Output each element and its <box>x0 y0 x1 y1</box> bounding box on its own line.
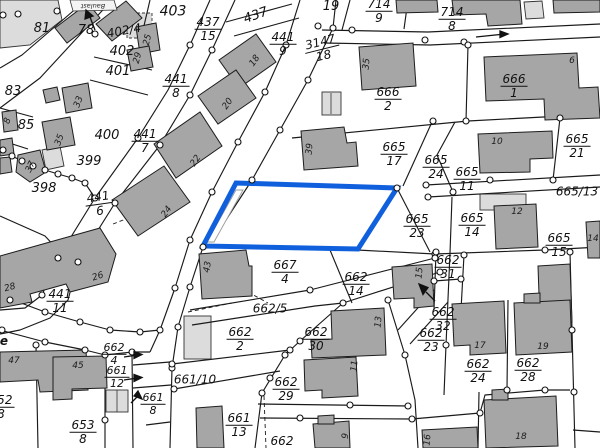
house-number-13: 13 <box>374 316 385 328</box>
house-number-6: 6 <box>569 56 575 66</box>
house-number-12: 12 <box>511 207 522 217</box>
house-number-45: 45 <box>72 361 83 371</box>
house-number-28: 28 <box>3 282 17 295</box>
parcel-label-666-1: 6661 <box>501 73 528 99</box>
parcel-label-661-12: 66112 <box>105 365 130 389</box>
parcel-label-714-8: 7148 <box>439 6 466 32</box>
house-number-17: 17 <box>474 341 485 351</box>
parcel-label-665-23: 66523 <box>404 213 431 239</box>
house-number-24: 24 <box>160 204 175 219</box>
house-number-15: 15 <box>415 267 426 279</box>
parcel-label-662-23: 66223 <box>418 327 445 353</box>
parcel-label-400: 400 <box>93 129 122 143</box>
house-number-11: 11 <box>350 360 361 372</box>
parcel-label-665-15: 66515 <box>546 232 573 258</box>
house-number-14: 14 <box>587 234 598 244</box>
house-number-29: 29 <box>132 51 145 65</box>
parcel-label-3147-18: 314718 <box>302 32 342 66</box>
house-number-47: 47 <box>8 356 19 366</box>
parcel-label-85: 85 <box>16 119 37 133</box>
parcel-label-714-9: 7149 <box>366 0 393 24</box>
parcel-label-81: 81 <box>32 22 53 36</box>
house-number-18: 18 <box>248 53 263 68</box>
house-number-33: 33 <box>72 95 85 109</box>
house-number-37: 37 <box>24 160 38 175</box>
parcel-label-19: 19 <box>321 0 342 14</box>
parcel-label-665-21: 66521 <box>564 133 591 159</box>
parcel-label-662-31: 66231 <box>435 254 462 280</box>
parcel-label-441-8: 4418 <box>163 73 190 99</box>
house-number-18: 18 <box>515 432 526 442</box>
parcel-label-665-11: 66511 <box>454 166 481 192</box>
house-number-9: 9 <box>341 433 351 440</box>
parcel-label-667-4: 6674 <box>272 259 299 285</box>
parcel-label-652-8: 6528 <box>0 394 14 420</box>
house-number-26: 26 <box>91 270 105 283</box>
parcel-label-437: 437 <box>240 5 272 28</box>
house-number-35: 35 <box>53 133 66 147</box>
parcel-label-662: 662 <box>269 435 296 448</box>
parcel-label-83: 83 <box>3 85 24 99</box>
parcel-label-402/4: 402/4 <box>104 21 144 40</box>
house-number-20: 20 <box>221 96 236 111</box>
parcel-label-441-6: 4416 <box>84 189 114 219</box>
parcel-label-665-24: 66524 <box>423 154 450 180</box>
parcel-label-441-11: 44111 <box>47 288 74 314</box>
house-number-16: 16 <box>423 434 434 446</box>
parcel-label-665-14: 66514 <box>459 212 486 238</box>
parcel-label-398: 398 <box>30 182 59 196</box>
street-name-fragment: e <box>0 335 8 347</box>
parcel-label-665-17: 66517 <box>381 141 408 167</box>
house-number-8: 8 <box>2 117 13 126</box>
map-labels: 8178402/44034371543744191971497148314718… <box>0 0 600 448</box>
parcel-label-78: 78 <box>76 24 97 38</box>
parcel-label-441-9: 4419 <box>270 31 297 57</box>
parcel-label-665/13: 665/13 <box>554 186 600 199</box>
parcel-label-661-8: 6618 <box>141 392 166 416</box>
parcel-label-662-28: 66228 <box>515 357 542 383</box>
house-number-35: 35 <box>362 58 373 70</box>
parcel-label-662/5: 662/5 <box>251 303 290 316</box>
cadastral-map: Baulast <box>0 0 600 448</box>
house-number-19: 19 <box>537 342 548 352</box>
parcel-label-661/10: 661/10 <box>172 374 218 387</box>
parcel-label-441-7: 4417 <box>132 128 159 154</box>
parcel-label-399: 399 <box>75 155 104 169</box>
parcel-label-662-2: 6622 <box>227 326 254 352</box>
parcel-label-662-4: 6624 <box>102 342 127 366</box>
parcel-label-662-24: 66224 <box>465 358 492 384</box>
parcel-label-401: 401 <box>104 65 133 79</box>
parcel-label-437-15: 43715 <box>195 16 222 42</box>
house-number-25: 25 <box>142 33 155 47</box>
parcel-label-653-8: 6538 <box>70 419 97 445</box>
house-number-43: 43 <box>202 260 214 273</box>
parcel-label-666-2: 6662 <box>375 86 402 112</box>
house-number-22: 22 <box>189 153 204 168</box>
house-number-39: 39 <box>305 143 316 155</box>
parcel-label-403: 403 <box>158 5 189 20</box>
house-number-10: 10 <box>491 137 502 147</box>
parcel-label-662-14: 66214 <box>343 271 370 297</box>
parcel-label-662-29: 66229 <box>273 376 300 402</box>
parcel-label-661-13: 66113 <box>226 412 253 438</box>
parcel-label-662-30: 66230 <box>303 326 330 352</box>
